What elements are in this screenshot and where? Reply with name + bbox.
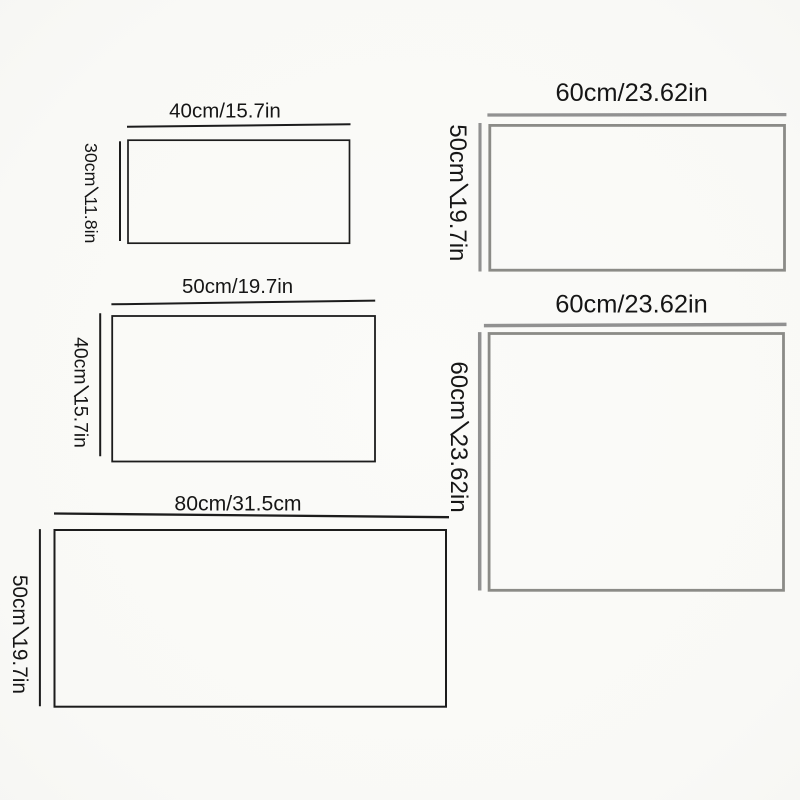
- svg-text:40cm/15.7in: 40cm/15.7in: [169, 100, 281, 123]
- svg-text:50cm/19.7in: 50cm/19.7in: [182, 276, 293, 298]
- svg-text:60cm/23.62in: 60cm/23.62in: [555, 79, 707, 107]
- svg-text:60cm 23.62in: 60cm 23.62in: [445, 361, 472, 512]
- svg-text:80cm/31.5cm: 80cm/31.5cm: [174, 493, 301, 516]
- svg-text:60cm/23.62in: 60cm/23.62in: [555, 291, 707, 319]
